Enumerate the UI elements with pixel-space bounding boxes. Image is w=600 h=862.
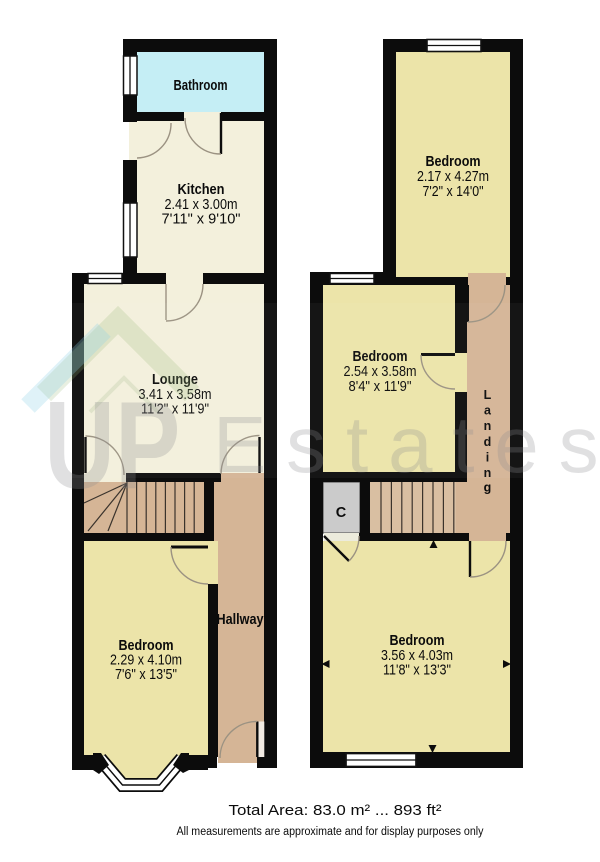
svg-text:Bathroom: Bathroom <box>174 78 228 94</box>
svg-text:Hallway: Hallway <box>217 612 264 628</box>
svg-text:UP: UP <box>44 376 180 515</box>
svg-text:Estates: Estates <box>213 400 600 489</box>
svg-text:Bedroom: Bedroom <box>426 154 481 170</box>
svg-text:Bedroom: Bedroom <box>390 633 445 649</box>
svg-text:7'2" x 14'0": 7'2" x 14'0" <box>423 184 484 200</box>
svg-text:C: C <box>336 505 347 521</box>
svg-text:2.17 x 4.27m: 2.17 x 4.27m <box>417 169 489 185</box>
svg-text:All measurements are approxima: All measurements are approximate and for… <box>177 826 484 838</box>
svg-text:11'8" x 13'3": 11'8" x 13'3" <box>383 663 451 679</box>
svg-text:7'11" x 9'10": 7'11" x 9'10" <box>162 212 241 228</box>
svg-text:Kitchen: Kitchen <box>178 182 225 198</box>
svg-text:7'6" x 13'5": 7'6" x 13'5" <box>115 667 177 683</box>
svg-text:Total Area: 83.0 m² ... 893 ft: Total Area: 83.0 m² ... 893 ft² <box>229 802 442 819</box>
